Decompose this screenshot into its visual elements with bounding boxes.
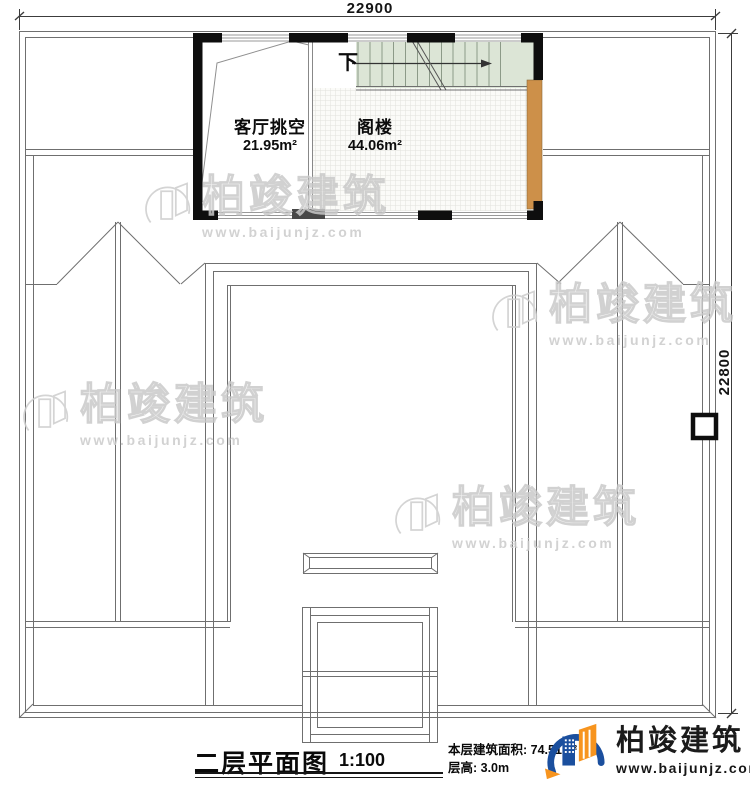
dimension-top-value: 22900 [330, 0, 410, 17]
entry-canopy [303, 553, 438, 574]
chimney [693, 415, 716, 438]
room-name: 阁楼 [310, 118, 440, 138]
plan-title: 二层平面图 [194, 744, 329, 780]
porch-roof [302, 607, 438, 743]
title-underline [195, 777, 443, 778]
wing-roof-lines [25, 222, 710, 628]
logo-building-icon [541, 720, 609, 782]
title-underline [195, 772, 443, 774]
stairs-down-label: 下 [334, 46, 362, 75]
plan-scale: 1:100 [339, 750, 385, 771]
floor-plan-page: { "dimensions": { "top": "22900", "right… [0, 0, 750, 787]
wood-strip [527, 80, 542, 209]
room-area: 44.06m² [310, 138, 440, 155]
company-logo[interactable]: 柏竣建筑 www.baijunjz.com [541, 720, 750, 782]
courtyard-lines [19, 263, 716, 718]
logo-company-name: 柏竣建筑 [616, 726, 750, 756]
logo-website[interactable]: www.baijunjz.com [616, 760, 750, 776]
dimension-right-value: 22800 [693, 340, 750, 404]
room-attic-label: 阁楼 44.06m² [310, 118, 440, 154]
door-threshold [292, 209, 325, 219]
